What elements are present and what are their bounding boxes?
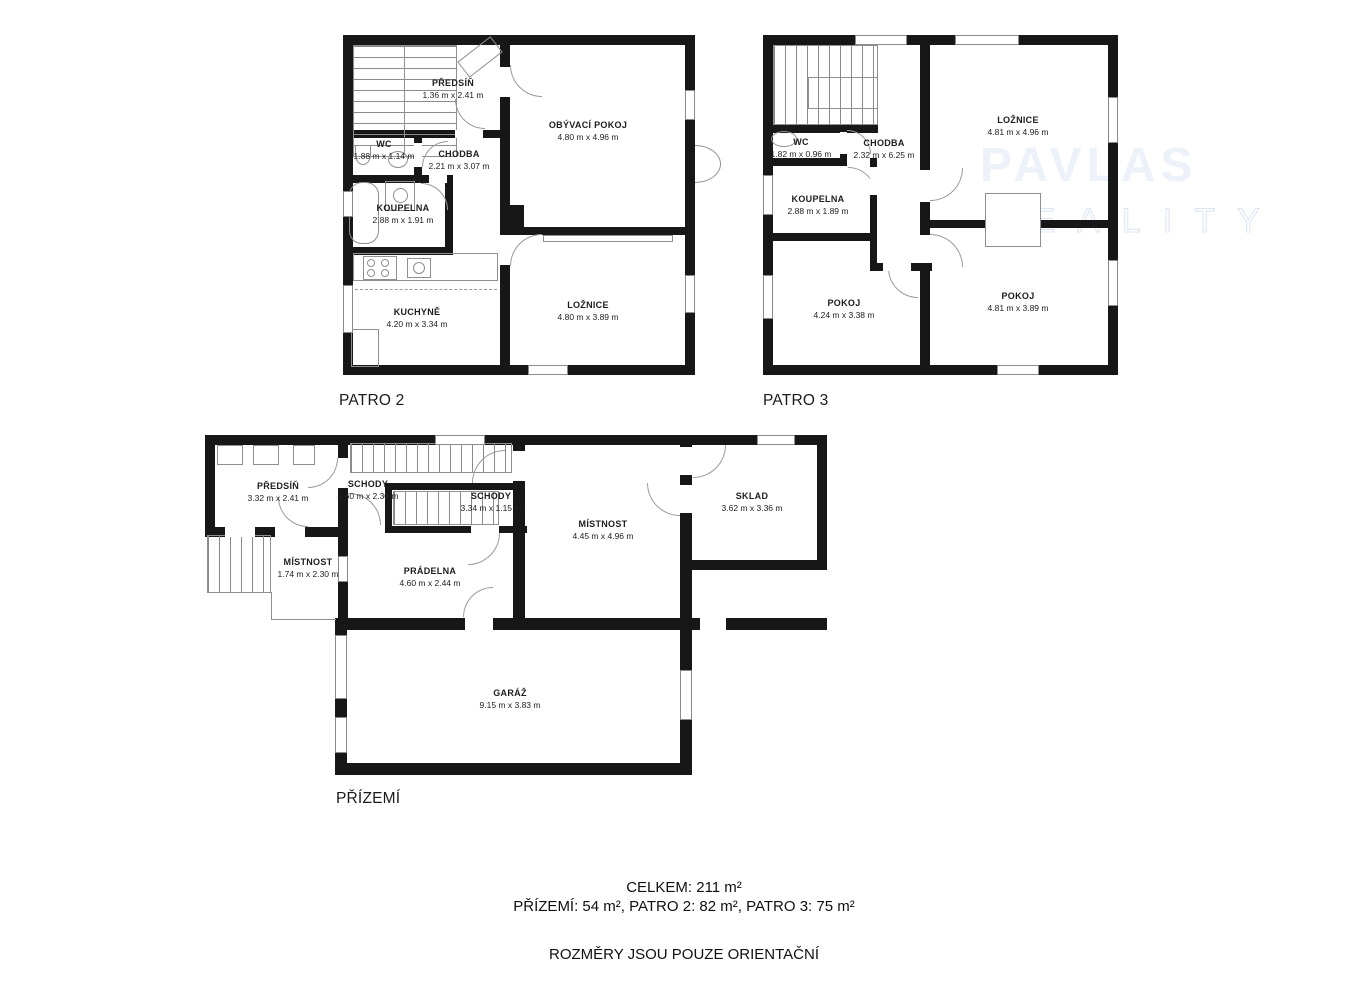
room-dims: 4.81 m x 3.89 m	[958, 303, 1078, 314]
door-arc	[930, 168, 963, 201]
room-label: KOUPELNA 2.88 m x 1.91 m	[361, 203, 445, 226]
room-dims: 3.34 m x 1.15 m	[453, 503, 529, 514]
wall	[343, 365, 695, 375]
door-opening	[870, 167, 877, 195]
stove-burner	[367, 259, 375, 267]
room-name: CHODBA	[841, 138, 927, 149]
chimney-block	[500, 205, 524, 229]
room-label: SCHODY 4.60 m x 2.30 m	[335, 479, 401, 502]
counter-dash-line	[355, 289, 497, 290]
window	[1108, 260, 1118, 306]
room-label: OBÝVACÍ POKOJ 4.80 m x 4.96 m	[528, 120, 648, 143]
window	[855, 35, 907, 45]
wall	[335, 618, 827, 630]
room-dims: 9.15 m x 3.83 m	[450, 700, 570, 711]
room-dims: 3.62 m x 3.36 m	[692, 503, 812, 514]
room-name: WC	[353, 139, 415, 150]
window	[685, 90, 695, 120]
room-name: SCHODY	[335, 479, 401, 490]
floorplan-page: PAVLAS REALITY	[0, 0, 1368, 1000]
room-dims: 1.36 m x 2.41 m	[408, 90, 498, 101]
room-label: KOUPELNA 2.88 m x 1.89 m	[775, 194, 861, 217]
room-label: CHODBA 2.21 m x 3.07 m	[418, 149, 500, 172]
room-dims: 4.80 m x 4.96 m	[528, 132, 648, 143]
door-opening	[429, 175, 447, 183]
wall	[817, 435, 827, 570]
room-name: KUCHYNĚ	[371, 307, 463, 318]
room-dims: 1.74 m x 2.30 m	[265, 569, 351, 580]
room-name: CHODBA	[418, 149, 500, 160]
room-name: LOŽNICE	[528, 300, 648, 311]
room-dims: 2.88 m x 1.91 m	[361, 215, 445, 226]
room-name: KOUPELNA	[775, 194, 861, 205]
room-dims: 3.32 m x 2.41 m	[232, 493, 324, 504]
room-name: WC	[768, 137, 834, 148]
porch-line	[271, 619, 336, 620]
wall	[343, 35, 695, 45]
floor-caption-patro2: PATRO 2	[339, 392, 404, 410]
room-name: GARÁŽ	[450, 688, 570, 699]
window	[335, 635, 347, 699]
door-opening	[455, 130, 483, 138]
room-label: POKOJ 4.24 m x 3.38 m	[785, 298, 903, 321]
furniture-box	[985, 193, 1041, 247]
window	[997, 365, 1039, 375]
door-arc	[693, 445, 726, 478]
wall	[920, 202, 930, 235]
room-label: KUCHYNĚ 4.20 m x 3.34 m	[371, 307, 463, 330]
door-arc	[930, 234, 963, 267]
door-arc	[510, 234, 542, 266]
room-name: PŘEDSÍŇ	[408, 78, 498, 89]
closet	[253, 445, 279, 465]
floorplan-prizemi: PŘEDSÍŇ 3.32 m x 2.41 m SCHODY 4.60 m x …	[205, 435, 827, 785]
summary-disclaimer: ROZMĚRY JSOU POUZE ORIENTAČNÍ	[0, 946, 1368, 963]
door-opening	[700, 618, 726, 630]
wall	[500, 265, 510, 365]
door-opening	[513, 451, 525, 481]
window	[763, 175, 773, 215]
window	[757, 435, 795, 445]
room-label: LOŽNICE 4.80 m x 3.89 m	[528, 300, 648, 323]
door-opening	[275, 527, 305, 537]
wall	[385, 483, 525, 490]
room-dims: 4.60 m x 2.30 m	[335, 491, 401, 502]
washbasin-bowl	[393, 188, 408, 203]
stove-burner	[381, 269, 389, 277]
window	[335, 717, 347, 753]
wall	[763, 365, 1118, 375]
room-name: SCHODY	[453, 491, 529, 502]
wall	[335, 763, 692, 775]
door-arc	[888, 268, 918, 298]
window	[528, 365, 568, 375]
door-arc	[463, 587, 493, 617]
door-arc	[647, 483, 680, 516]
summary-per-floor: PŘÍZEMÍ: 54 m², PATRO 2: 82 m², PATRO 3:…	[0, 897, 1368, 916]
wall	[1108, 35, 1118, 375]
floorplan-patro2: PŘEDSÍŇ 1.36 m x 2.41 m WC 1.88 m x 1.14…	[343, 35, 695, 375]
window	[343, 191, 353, 217]
room-dims: 4.60 m x 2.44 m	[370, 578, 490, 589]
room-label: PŘEDSÍŇ 1.36 m x 2.41 m	[408, 78, 498, 101]
built-in-wardrobe	[543, 235, 673, 242]
room-name: PŘEDSÍŇ	[232, 481, 324, 492]
room-dims: 4.80 m x 3.89 m	[528, 312, 648, 323]
cabinet	[351, 329, 379, 367]
exterior-stairs	[207, 535, 271, 593]
stairs-landing	[808, 77, 878, 109]
room-label: SKLAD 3.62 m x 3.36 m	[692, 491, 812, 514]
wall	[445, 175, 453, 255]
wall	[500, 227, 685, 235]
room-name: MÍSTNOST	[543, 519, 663, 530]
window	[343, 285, 353, 333]
room-dims: 4.24 m x 3.38 m	[785, 310, 903, 321]
room-label: PŘEDSÍŇ 3.32 m x 2.41 m	[232, 481, 324, 504]
window	[763, 275, 773, 319]
door-arc	[455, 99, 485, 129]
floor-caption-prizemi: PŘÍZEMÍ	[336, 790, 400, 808]
wall	[680, 560, 827, 570]
wall	[920, 267, 930, 365]
room-name: OBÝVACÍ POKOJ	[528, 120, 648, 131]
room-label: WC 1.88 m x 1.14 m	[353, 139, 415, 162]
porch-line	[271, 592, 272, 620]
room-dims: 4.20 m x 3.34 m	[371, 319, 463, 330]
wall	[205, 435, 215, 537]
stove-burner	[381, 259, 389, 267]
window	[685, 275, 695, 313]
wall	[500, 45, 510, 67]
door-arc	[468, 533, 500, 565]
summary-total: CELKEM: 211 m²	[0, 878, 1368, 897]
wall	[763, 35, 1118, 45]
door-opening	[680, 447, 692, 475]
wall	[685, 35, 695, 375]
room-label: SCHODY 3.34 m x 1.15 m	[453, 491, 529, 514]
room-dims: 2.32 m x 6.25 m	[841, 150, 927, 161]
door-opening	[225, 527, 255, 537]
room-label: MÍSTNOST 4.45 m x 4.96 m	[543, 519, 663, 542]
kitchen-sink-bowl	[413, 262, 425, 274]
door-opening	[883, 263, 911, 271]
room-name: LOŽNICE	[958, 115, 1078, 126]
wall	[763, 233, 877, 241]
room-label: PRÁDELNA 4.60 m x 2.44 m	[370, 566, 490, 589]
window	[955, 35, 1019, 45]
door-opening	[465, 618, 493, 630]
door-opening	[471, 526, 499, 533]
floor-caption-patro3: PATRO 3	[763, 392, 828, 410]
room-label: LOŽNICE 4.81 m x 4.96 m	[958, 115, 1078, 138]
bay-window	[695, 145, 721, 183]
wall	[385, 526, 527, 533]
room-name: MÍSTNOST	[265, 557, 351, 568]
floorplan-patro3: WC 1.82 m x 0.96 m CHODBA 2.32 m x 6.25 …	[763, 35, 1118, 375]
room-label: WC 1.82 m x 0.96 m	[768, 137, 834, 160]
room-dims: 4.45 m x 4.96 m	[543, 531, 663, 542]
room-name: KOUPELNA	[361, 203, 445, 214]
room-name: SKLAD	[692, 491, 812, 502]
window	[680, 670, 692, 720]
room-label: CHODBA 2.32 m x 6.25 m	[841, 138, 927, 161]
room-name: PRÁDELNA	[370, 566, 490, 577]
window	[435, 435, 485, 445]
room-name: POKOJ	[785, 298, 903, 309]
area-summary: CELKEM: 211 m² PŘÍZEMÍ: 54 m², PATRO 2: …	[0, 878, 1368, 963]
room-dims: 1.82 m x 0.96 m	[768, 149, 834, 160]
window	[1108, 97, 1118, 143]
door-arc	[510, 65, 542, 97]
room-label: POKOJ 4.81 m x 3.89 m	[958, 291, 1078, 314]
door-opening	[680, 485, 692, 513]
room-label: GARÁŽ 9.15 m x 3.83 m	[450, 688, 570, 711]
room-dims: 2.21 m x 3.07 m	[418, 161, 500, 172]
room-name: POKOJ	[958, 291, 1078, 302]
room-dims: 2.88 m x 1.89 m	[775, 206, 861, 217]
room-dims: 1.88 m x 1.14 m	[353, 151, 415, 162]
stove-burner	[367, 269, 375, 277]
room-dims: 4.81 m x 4.96 m	[958, 127, 1078, 138]
room-label: MÍSTNOST 1.74 m x 2.30 m	[265, 557, 351, 580]
closet	[217, 445, 243, 465]
